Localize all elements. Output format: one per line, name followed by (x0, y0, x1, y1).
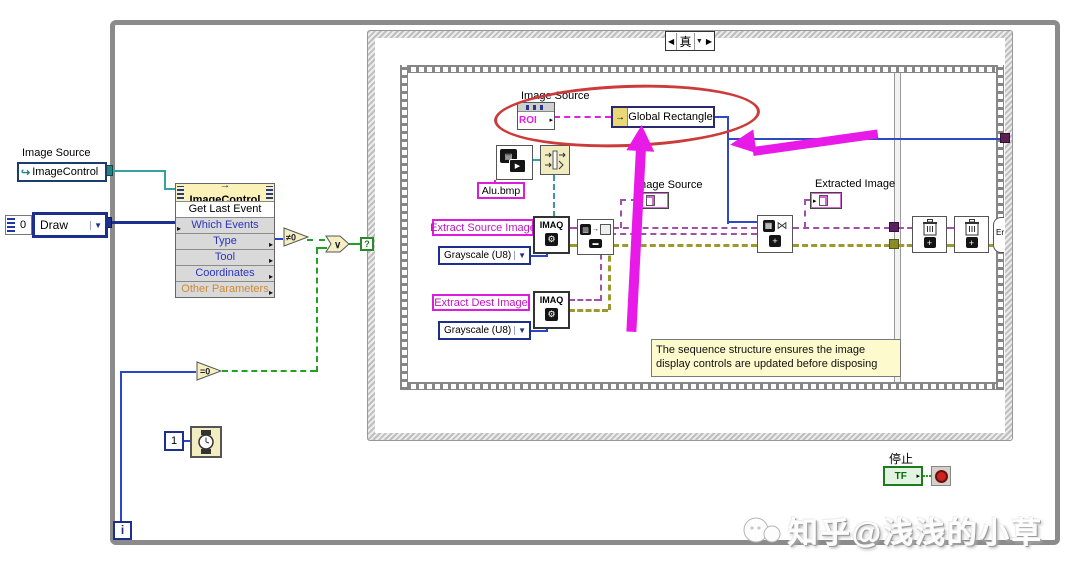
invoke-param-which-events: ▸ Which Events (176, 217, 274, 233)
draw-dropdown-icon[interactable]: ▼ (90, 221, 105, 230)
boolean-wire (923, 475, 931, 477)
imaq-create-node-2[interactable]: IMAQ ⚙ (533, 291, 570, 329)
loop-iteration-terminal[interactable]: i (113, 521, 132, 540)
error-wire (613, 244, 757, 247)
stop-terminal[interactable]: TF ▸ (883, 466, 923, 486)
imaq-readfile-node[interactable]: ▥ → ▬ (577, 219, 614, 255)
path-wire (532, 159, 540, 161)
refnum-arrow-icon: ↪ (21, 166, 30, 179)
bowtie-icon: ⋈ (777, 219, 788, 232)
invoke-method-row: Get Last Event (176, 201, 274, 217)
invoke-method-label: Get Last Event (189, 203, 262, 215)
error-wire (793, 244, 890, 247)
plus-icon: + (924, 237, 936, 248)
imaq-create-node-1[interactable]: IMAQ ⚙ (533, 216, 570, 254)
extracted-image-indicator-label: Extracted Image (815, 178, 895, 190)
constant-grid-icon (7, 218, 15, 232)
image-wire (899, 227, 912, 229)
image-source-control-label: Image Source (22, 147, 90, 159)
draw-ring-value: Draw (35, 218, 68, 232)
param-label: Other Parameters (181, 283, 268, 295)
image-chip-icon: ▦ (763, 220, 775, 232)
extract-dest-image-label: Extract Dest Image (432, 294, 530, 311)
sequence-border-bottom (400, 382, 1004, 390)
sequence-border-top (400, 65, 1004, 73)
output-arrow-icon: ▸ (269, 285, 273, 300)
wait-ms-node[interactable] (190, 426, 222, 458)
method-arrow-icon: → (220, 179, 231, 191)
unbundle-arrow-icon: → (613, 108, 628, 126)
gear-icon: ⚙ (545, 308, 558, 321)
image-wire (793, 227, 890, 229)
error-wire (899, 244, 912, 247)
equal-zero-node[interactable]: =0 (196, 361, 222, 381)
iteration-wire (120, 371, 196, 373)
unbundle-field-label: Global Rectangle (628, 108, 713, 126)
zero-constant-value: 0 (15, 219, 31, 231)
image-source-indicator-terminal[interactable]: ▸ (637, 192, 669, 209)
label-text: Extract Dest Image (434, 297, 528, 309)
or-node[interactable]: ∨ (325, 234, 351, 254)
grayscale-value: Grayscale (U8) (440, 250, 511, 261)
strip-path-node[interactable] (540, 145, 570, 175)
strip-path-icon (544, 149, 566, 171)
image-wire (569, 227, 577, 229)
vi-path-constant[interactable]: ▤ ▶ (496, 145, 533, 180)
case-tunnel-rectangle (1000, 133, 1010, 143)
refnum-wire (164, 170, 166, 190)
plus-icon: + (769, 235, 781, 247)
rectangle-wire (729, 221, 757, 223)
imaq-label: IMAQ (540, 295, 564, 305)
unbundle-global-rectangle[interactable]: → Global Rectangle (611, 106, 715, 128)
param-label: Coordinates (195, 267, 254, 279)
output-arrow-icon: ▸ (549, 116, 553, 124)
one-constant[interactable]: 1 (164, 431, 184, 451)
param-label: Type (213, 235, 237, 247)
invoke-node-imagecontrol[interactable]: → ImageControl Get Last Event ▸ Which Ev… (175, 183, 275, 298)
disk-icon: ▬ (589, 239, 602, 248)
roi-wire (554, 116, 611, 118)
error-node-text: Er (996, 228, 1004, 237)
file-name-text: Alu.bmp (482, 185, 521, 197)
image-source-indicator-label: Image Source (634, 179, 702, 191)
not-equal-zero-glyph: ≠0 (286, 233, 296, 243)
boolean-wire (316, 248, 318, 372)
stop-label: 停止 (889, 450, 913, 467)
output-arrow-icon: ▸ (640, 197, 644, 205)
invoke-param-other-parameters: Other Parameters ▸ (176, 281, 274, 297)
grayscale-ring-2[interactable]: Grayscale (U8) ▼ (438, 321, 531, 340)
file-play-icon: ▶ (509, 159, 526, 173)
invoke-node-header: → ImageControl (176, 184, 274, 201)
case-dropdown-icon[interactable]: ▼ (695, 38, 704, 45)
loop-condition-terminal[interactable] (931, 466, 951, 486)
imaq-label: IMAQ (540, 220, 564, 230)
enum-wire (112, 221, 176, 224)
output-arrow-icon: ▸ (813, 197, 817, 205)
frame-tunnel-error (889, 239, 899, 249)
invoke-param-coordinates: Coordinates ▸ (176, 265, 274, 281)
output-arrow-icon: ▸ (916, 472, 921, 480)
plus-icon: + (966, 237, 978, 248)
zero-constant[interactable]: 0 (5, 215, 32, 235)
grayscale-dropdown-icon[interactable]: ▼ (514, 326, 529, 335)
error-wire (608, 246, 611, 310)
type-wire (275, 238, 283, 240)
image-page-icon (819, 195, 828, 206)
iteration-wire (120, 371, 122, 523)
extract-source-image-label: Extract Source Image (432, 219, 534, 236)
stop-button-icon (935, 470, 948, 483)
readfile-icon: ▥ → (580, 224, 611, 235)
case-selector-terminal[interactable]: ? (360, 237, 374, 251)
path-wire (553, 175, 555, 217)
invoke-param-tool: Tool ▸ (176, 249, 274, 265)
boolean-wire (222, 370, 316, 372)
equal-zero-glyph: =0 (200, 367, 210, 377)
node-corner-icon (266, 186, 273, 199)
watermark-text: 知乎@浅浅的小草 (788, 508, 1043, 552)
roi-property-node[interactable]: ROI ▸ (517, 102, 555, 130)
image-wire (620, 199, 637, 201)
trash-icon (964, 219, 980, 236)
image-wire (600, 233, 757, 235)
refnum-wire (114, 170, 166, 172)
rectangle-wire (727, 116, 729, 224)
error-wire (569, 309, 608, 312)
error-wire (569, 244, 577, 247)
param-label: Which Events (191, 219, 258, 231)
image-control-refnum[interactable]: ↪ ImageControl (17, 162, 107, 182)
stop-terminal-text: TF (885, 471, 916, 482)
imaq-extract-node[interactable]: ▦ ⋈ + (757, 215, 793, 253)
watermark: 知乎@浅浅的小草 (742, 508, 1043, 552)
invoke-param-type: Type ▸ (176, 233, 274, 249)
grayscale-ring-1[interactable]: Grayscale (U8) ▼ (438, 246, 531, 265)
rectangle-wire (727, 138, 1003, 140)
trash-icon (922, 219, 938, 236)
case-selector[interactable]: ◀ 真 ▼ ▶ (665, 31, 715, 51)
extracted-image-indicator-terminal[interactable]: ▸ (810, 192, 842, 209)
or-glyph: ∨ (334, 240, 341, 251)
param-label: Tool (215, 251, 235, 263)
property-node-icon (518, 103, 554, 112)
case-selector-value[interactable]: 真 (676, 33, 695, 50)
imaq-dispose-node-2[interactable]: + (954, 216, 989, 253)
not-equal-zero-node[interactable]: ≠0 (283, 227, 309, 247)
roi-property-name: ROI (519, 115, 537, 126)
frame-tunnel-image (889, 222, 899, 232)
file-name-constant[interactable]: Alu.bmp (477, 182, 525, 199)
labview-block-diagram: ◀ 真 ▼ ▶ Image Source ↪ ImageControl 0 Dr… (0, 0, 1080, 578)
label-text: Extract Source Image (430, 222, 536, 234)
gear-icon: ⚙ (545, 233, 558, 246)
imaq-dispose-node-1[interactable]: + (912, 216, 947, 253)
node-corner-icon (177, 186, 184, 199)
boolean-wire (307, 239, 325, 241)
free-label-comment: The sequence structure ensures the image… (651, 339, 901, 377)
draw-ring-constant[interactable]: Draw ▼ (32, 212, 108, 238)
error-handler-node[interactable]: Er (993, 217, 1004, 253)
watermark-logo (742, 512, 782, 548)
grayscale-dropdown-icon[interactable]: ▼ (514, 251, 529, 260)
image-wire (569, 299, 600, 301)
case-next-icon[interactable]: ▶ (704, 37, 714, 46)
sequence-border-left (400, 65, 408, 390)
image-wire (613, 227, 757, 229)
case-prev-icon[interactable]: ◀ (666, 37, 676, 46)
image-page-icon (646, 195, 655, 206)
property-node-label: Image Source (521, 90, 589, 102)
watch-icon (196, 430, 216, 454)
image-wire (946, 227, 954, 229)
error-wire (946, 244, 954, 247)
refnum-label: ImageControl (32, 166, 98, 178)
image-wire (620, 199, 622, 228)
image-wire (804, 199, 806, 228)
grayscale-value: Grayscale (U8) (440, 325, 511, 336)
